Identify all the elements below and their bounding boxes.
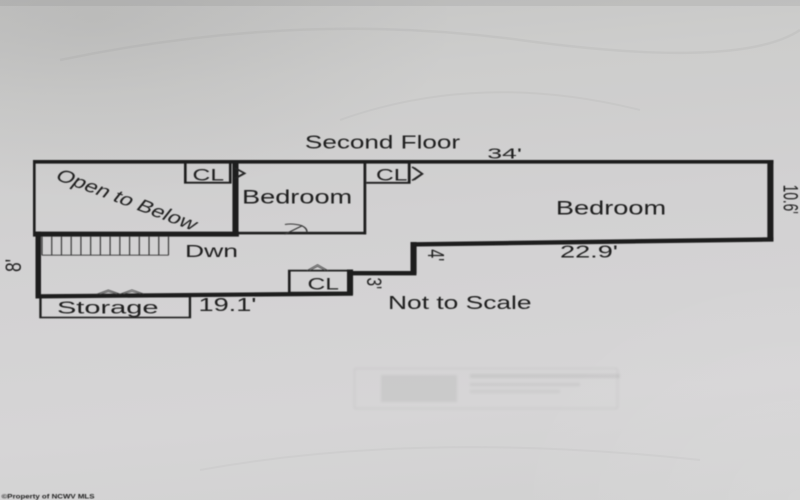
svg-text:34': 34' (487, 146, 522, 162)
svg-text:19.1': 19.1' (199, 294, 257, 315)
svg-text:CL: CL (193, 166, 225, 184)
svg-text:22.9': 22.9' (560, 241, 618, 261)
svg-text:3': 3' (362, 278, 385, 290)
svg-text:10.6': 10.6' (779, 185, 800, 214)
svg-text:©Property of NCWV MLS: ©Property of NCWV MLS (2, 493, 96, 500)
svg-text:Second Floor: Second Floor (305, 131, 461, 152)
svg-text:Storage: Storage (57, 297, 159, 317)
svg-text:Bedroom: Bedroom (556, 198, 666, 219)
svg-text:Dwn: Dwn (185, 241, 238, 261)
svg-text:Bedroom: Bedroom (242, 187, 352, 208)
svg-text:Not to Scale: Not to Scale (388, 292, 532, 313)
svg-text:8': 8' (1, 259, 25, 272)
svg-text:CL: CL (376, 166, 408, 184)
svg-text:4': 4' (422, 249, 448, 261)
svg-text:Open to Below: Open to Below (51, 166, 203, 234)
svg-text:CL: CL (308, 275, 340, 293)
